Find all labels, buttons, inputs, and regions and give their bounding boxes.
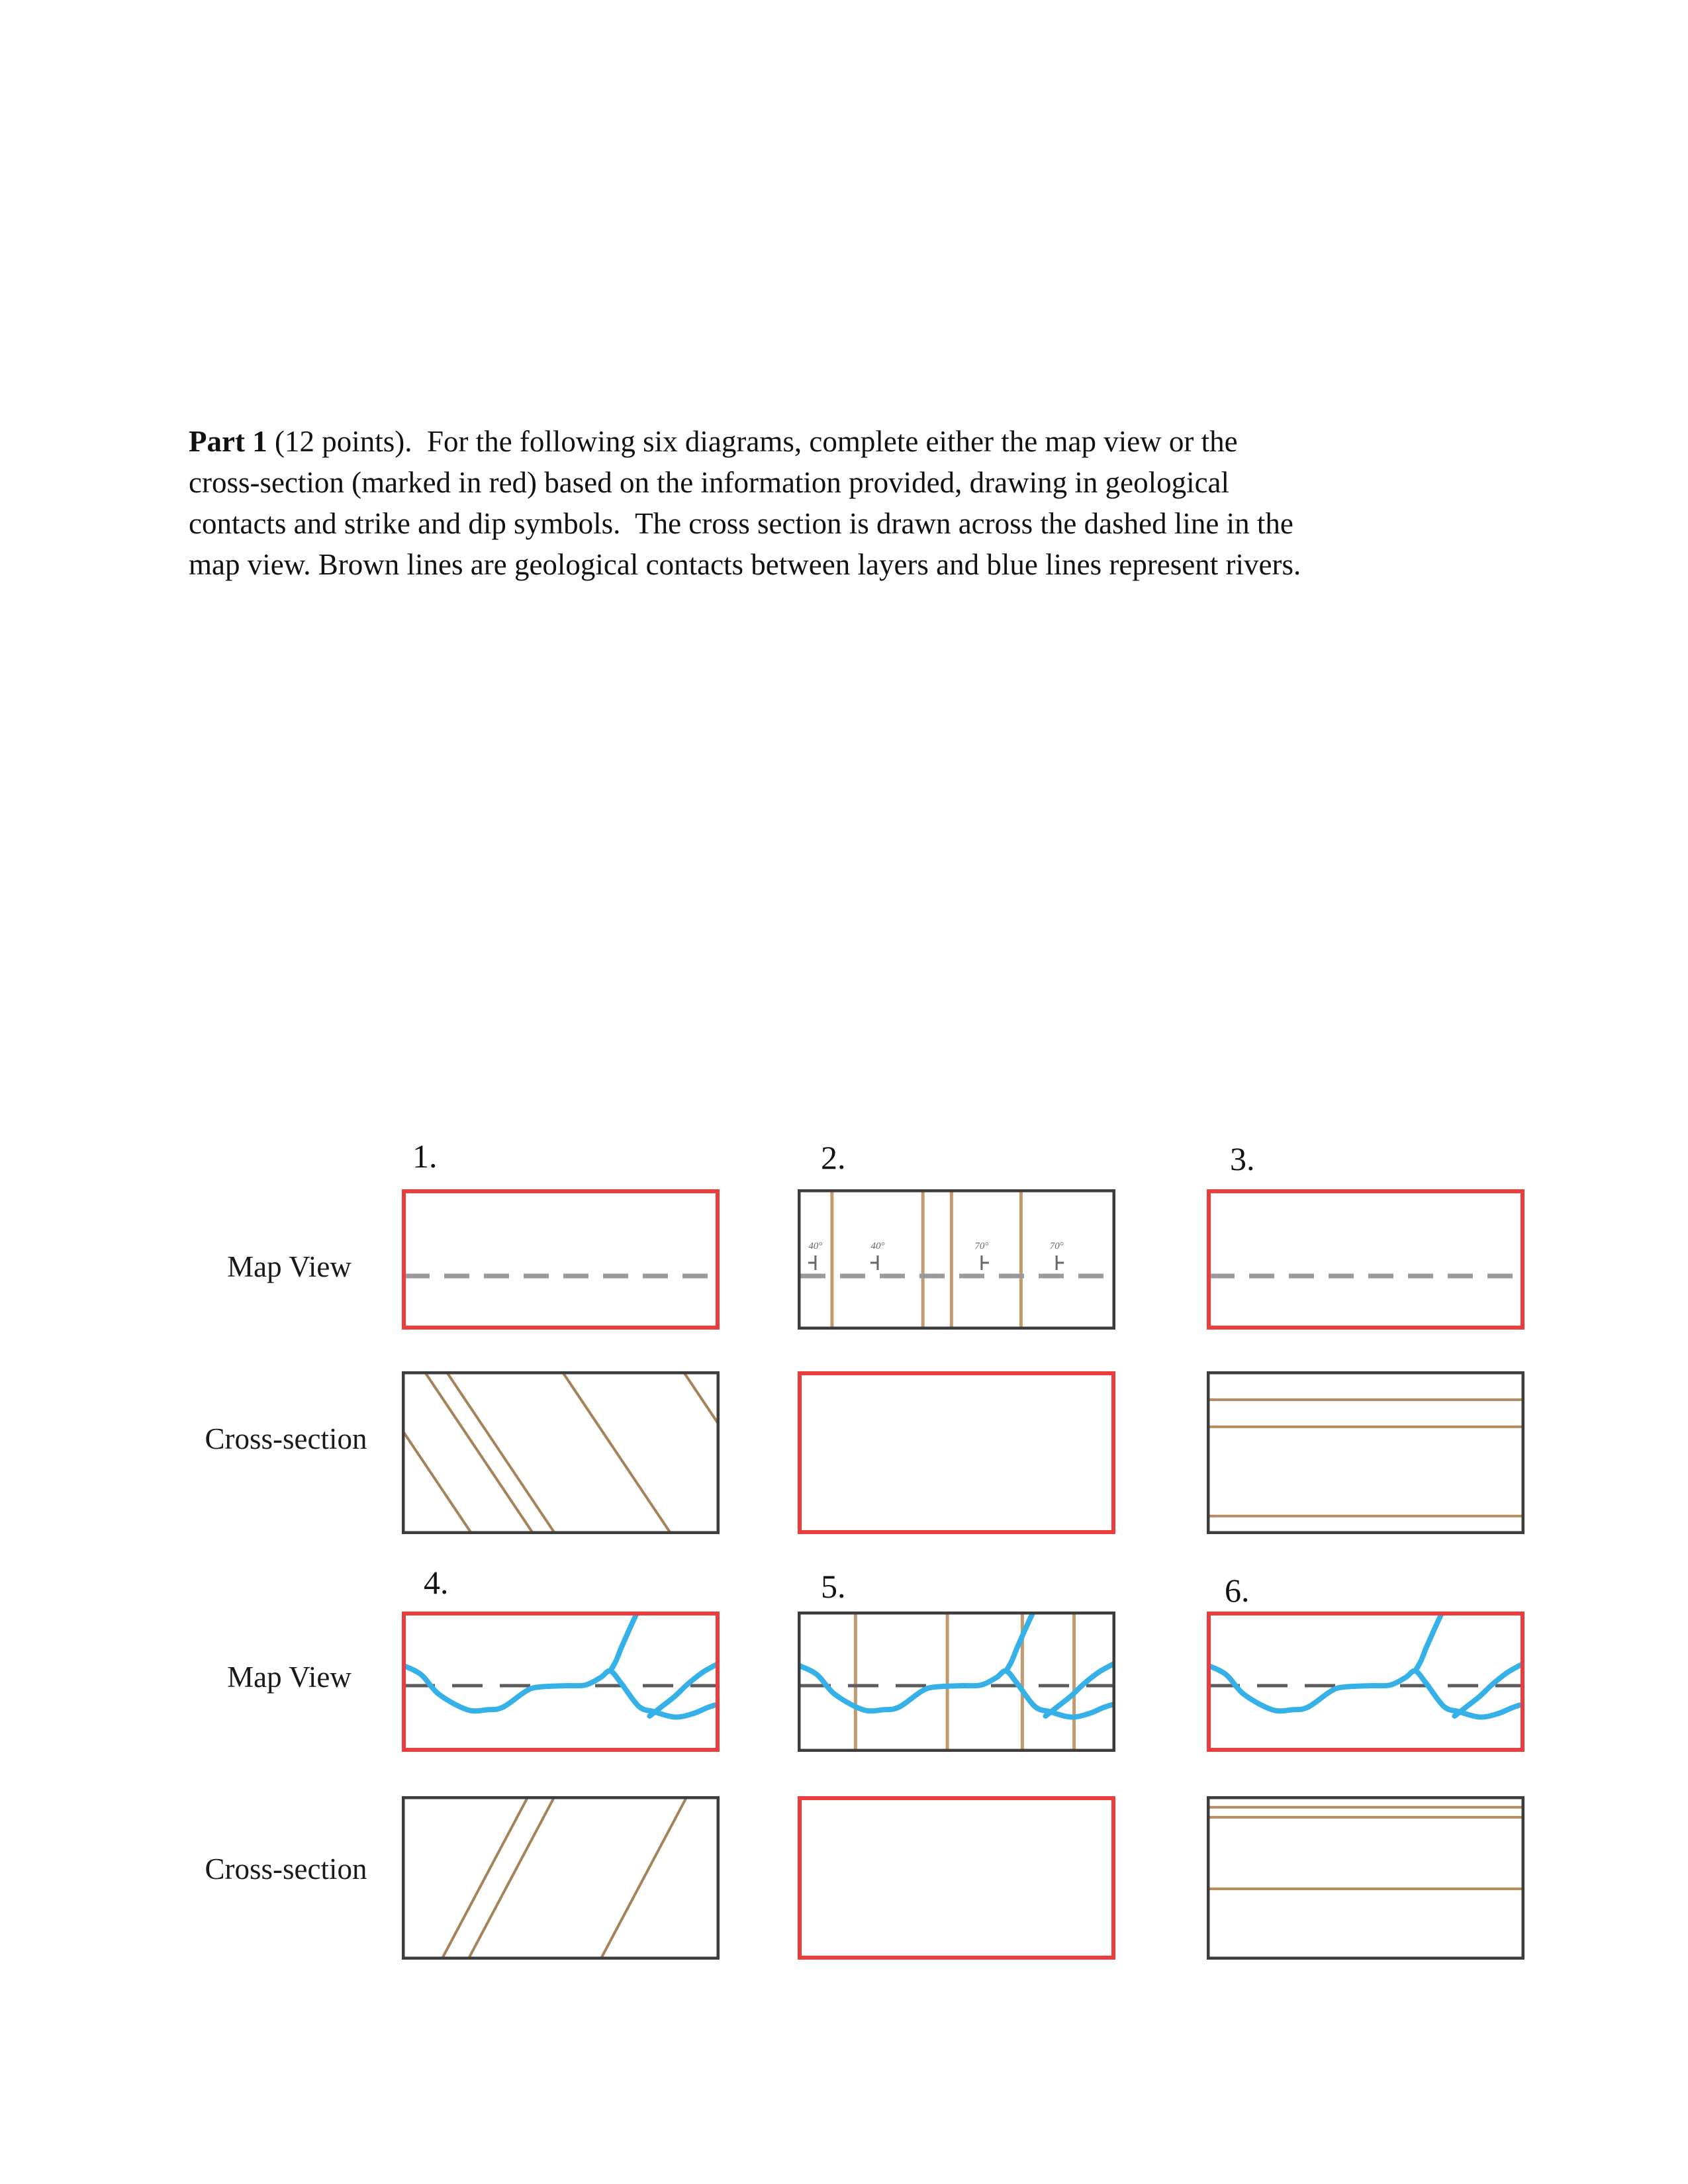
river-main — [1207, 1665, 1524, 1717]
geological-contact-dipping — [446, 1371, 555, 1534]
diagram-2-map-view: 40°40°70°70° — [798, 1189, 1115, 1330]
black-frame — [403, 1797, 718, 1958]
diagram-4-cross-section — [402, 1796, 720, 1960]
diagram-3-map-view — [1207, 1189, 1524, 1330]
strike-dip-symbol: 40° — [808, 1241, 823, 1270]
river-main — [798, 1665, 1115, 1717]
part-title: Part 1 — [189, 425, 267, 458]
intro-line-3: contacts and strike and dip symbols. The… — [189, 503, 1450, 544]
diagram-5-cross-section — [798, 1796, 1115, 1960]
red-frame — [800, 1798, 1113, 1958]
dip-angle-label: 40° — [808, 1241, 822, 1251]
geological-contact-dipping — [424, 1371, 534, 1534]
row2-map-view-label: Map View — [197, 1660, 382, 1694]
diagram-6-cross-section — [1207, 1796, 1524, 1960]
river-tributary-top — [610, 1612, 637, 1671]
geological-contact-dipping — [562, 1371, 671, 1534]
diagram-2-number: 2. — [821, 1138, 846, 1177]
red-frame — [800, 1373, 1113, 1532]
black-frame — [403, 1373, 718, 1533]
river-main — [402, 1665, 720, 1717]
intro-line-4: map view. Brown lines are geological con… — [189, 544, 1450, 585]
red-frame — [404, 1191, 718, 1328]
black-frame — [1208, 1373, 1523, 1533]
geological-contact-dipping — [442, 1796, 528, 1960]
river-tributary-top — [1415, 1612, 1442, 1671]
row1-map-view-label: Map View — [197, 1250, 382, 1284]
dip-angle-label: 70° — [974, 1241, 988, 1251]
intro-line-1: Part 1 (12 points). For the following si… — [189, 421, 1450, 462]
row2-cross-section-label: Cross-section — [173, 1852, 399, 1886]
diagram-5-number: 5. — [821, 1567, 846, 1606]
river-tributary-top — [1006, 1612, 1033, 1671]
diagram-4-number: 4. — [424, 1563, 449, 1602]
diagram-1-map-view — [402, 1189, 720, 1330]
diagram-2-cross-section — [798, 1371, 1115, 1534]
strike-dip-symbol: 70° — [1050, 1241, 1064, 1270]
row1-cross-section-label: Cross-section — [173, 1422, 399, 1456]
red-frame — [1209, 1614, 1523, 1750]
dip-angle-label: 40° — [870, 1241, 884, 1251]
diagram-5-map-view — [798, 1612, 1115, 1752]
diagram-6-number: 6. — [1225, 1571, 1250, 1610]
diagram-6-map-view — [1207, 1612, 1524, 1752]
intro-line-1-text: (12 points). For the following six diagr… — [267, 425, 1238, 458]
black-frame — [1208, 1797, 1523, 1958]
geological-contact-dipping — [683, 1371, 720, 1534]
diagram-4-map-view — [402, 1612, 720, 1752]
black-frame — [799, 1191, 1114, 1328]
intro-line-2: cross-section (marked in red) based on t… — [189, 462, 1450, 503]
red-frame — [404, 1614, 718, 1750]
diagram-3-cross-section — [1207, 1371, 1524, 1534]
red-frame — [1209, 1191, 1523, 1328]
worksheet-page: Part 1 (12 points). For the following si… — [0, 0, 1688, 2184]
strike-dip-symbol: 40° — [870, 1241, 885, 1270]
diagram-1-cross-section — [402, 1371, 720, 1534]
diagram-1-number: 1. — [412, 1137, 438, 1175]
geological-contact-dipping — [600, 1796, 687, 1960]
diagram-3-number: 3. — [1230, 1140, 1255, 1178]
intro-paragraph: Part 1 (12 points). For the following si… — [189, 421, 1450, 585]
black-frame — [799, 1613, 1114, 1751]
dip-angle-label: 70° — [1050, 1241, 1064, 1251]
geological-contact-dipping — [468, 1796, 555, 1960]
strike-dip-symbol: 70° — [974, 1241, 989, 1270]
